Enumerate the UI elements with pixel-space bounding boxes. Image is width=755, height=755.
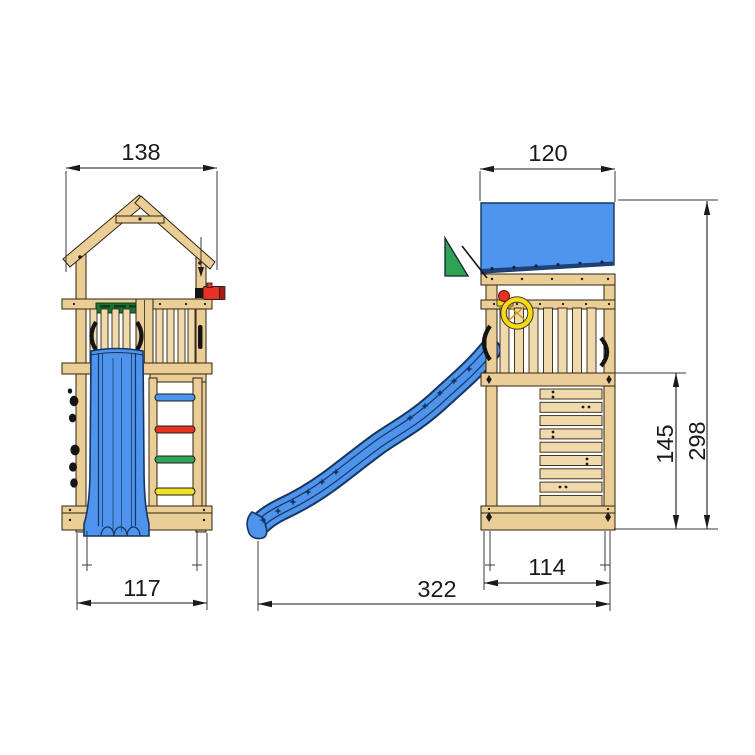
playtower-technical-drawing: 138 117 — [0, 0, 755, 755]
front-view: 138 117 — [62, 139, 225, 610]
roof-right-rafter — [135, 196, 215, 269]
dim-label-114: 114 — [528, 554, 565, 580]
climbing-ladder — [149, 378, 202, 508]
rung-green — [155, 456, 195, 463]
side-view: 120 145 298 114 — [247, 140, 718, 611]
dim-label-120: 120 — [528, 140, 567, 166]
dim-label-322: 322 — [417, 576, 456, 602]
side-base — [481, 506, 615, 530]
technical-drawing-page: 138 117 — [0, 0, 755, 755]
dimension-total-height: 298 — [614, 200, 718, 529]
rung-red — [155, 426, 195, 433]
side-left-post — [486, 285, 497, 508]
slide-front — [84, 349, 149, 537]
side-plank-wall — [540, 389, 602, 506]
front-ground-anchors — [82, 531, 202, 571]
front-left-post — [76, 248, 86, 532]
rung-blue — [155, 394, 195, 401]
grab-bar-right — [198, 325, 203, 349]
dimension-platform-height: 145 — [614, 373, 686, 529]
dim-label-298: 298 — [684, 421, 710, 460]
dim-label-117: 117 — [123, 575, 160, 601]
roof-tarp — [481, 203, 614, 273]
roof-left-rafter — [63, 195, 146, 267]
dimension-base-depth: 114 — [484, 531, 610, 611]
side-platform — [481, 373, 615, 386]
slide-side — [247, 347, 492, 539]
rung-yellow — [155, 488, 195, 495]
dimension-roof-depth: 120 — [480, 140, 615, 202]
side-right-post — [604, 285, 615, 508]
dim-label-138: 138 — [121, 139, 160, 165]
dim-label-145: 145 — [652, 424, 678, 463]
dimension-base-width: 117 — [77, 533, 207, 610]
side-eave-beam — [481, 274, 615, 285]
